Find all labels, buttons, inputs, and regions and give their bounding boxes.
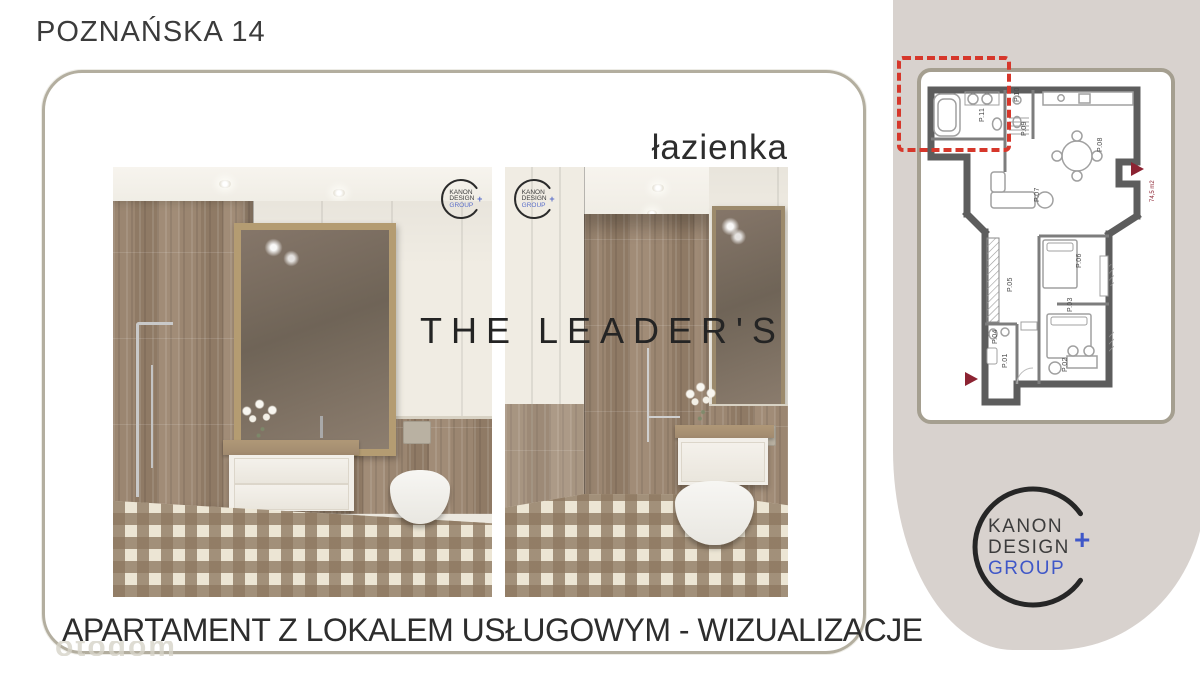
toilet <box>390 470 451 524</box>
highlight-dashed-box <box>897 56 1011 152</box>
flush-plate <box>403 421 432 445</box>
spotlight-icon <box>219 180 231 188</box>
kanon-stamp-line3: GROUP <box>449 203 474 210</box>
vanity-cabinet <box>229 455 354 511</box>
room-label-P.03: P.03 <box>1067 297 1074 312</box>
portal-watermark-clip: otodom <box>55 641 275 656</box>
kanon-stamp: KANON DESIGN GROUP + <box>511 176 557 222</box>
grab-bar-icon <box>647 416 681 418</box>
vanity-drawer <box>234 458 349 483</box>
kanon-stamp-text: KANON DESIGN GROUP <box>522 190 547 210</box>
room-label-P.04: P.04 <box>992 329 999 344</box>
room-label-P.07: P.07 <box>1034 187 1041 202</box>
section-label: łazienka <box>600 128 788 168</box>
bathroom-render-2: KANON DESIGN GROUP + <box>505 167 788 597</box>
kanon-logo-line1: KANON <box>988 516 1070 537</box>
flowers <box>238 399 287 442</box>
shower-rail-icon <box>136 322 173 497</box>
spotlight-icon <box>333 189 345 197</box>
room-label-P.01: P.01 <box>1002 353 1009 368</box>
room-label-P.02: P.02 <box>1062 357 1069 372</box>
kanon-logo-line2: DESIGN <box>988 537 1070 558</box>
kanon-stamp-plus: + <box>477 194 482 204</box>
page-title: POZNAŃSKA 14 <box>36 16 266 49</box>
bathroom-render-1: KANON DESIGN GROUP + <box>113 167 492 597</box>
presentation-slide: POZNAŃSKA 14 łazienka KANON DE <box>0 0 1200 675</box>
shower-hose <box>151 365 153 468</box>
plan-entry-marker-icon <box>965 372 978 386</box>
plan-radiator <box>1109 330 1114 352</box>
plan-balcony-strip <box>987 238 999 322</box>
vanity-drawer <box>681 442 764 482</box>
kanon-stamp: KANON DESIGN GROUP + <box>438 176 484 222</box>
vanity-drawer <box>234 484 349 509</box>
room-label-P.08: P.08 <box>1097 137 1104 152</box>
room-label-P.06: P.06 <box>1076 253 1083 268</box>
kanon-stamp-text: KANON DESIGN GROUP <box>449 190 474 210</box>
grab-bar-icon <box>647 348 649 443</box>
portal-watermark: otodom <box>55 641 275 656</box>
flowers <box>683 382 723 425</box>
plan-area-note: 74,5 m2 <box>1150 180 1156 202</box>
kanon-stamp-plus: + <box>549 194 554 204</box>
vanity-cabinet <box>678 438 769 485</box>
brand-watermark: THE LEADER'S <box>420 310 785 352</box>
kanon-logo-line3: GROUP <box>988 558 1070 579</box>
kanon-stamp-line3: GROUP <box>522 203 547 210</box>
vanity-countertop <box>675 425 774 438</box>
plan-radiator <box>1109 264 1114 286</box>
kanon-logo-plus: + <box>1074 524 1090 556</box>
room-label-P.09: P.09 <box>1021 121 1028 136</box>
vanity-countertop <box>223 440 359 455</box>
faucet-icon <box>320 416 323 438</box>
room-label-P.10: P.10 <box>1014 87 1021 102</box>
kanon-design-group-logo: KANON DESIGN GROUP + <box>958 472 1108 622</box>
room-label-P.05: P.05 <box>1007 277 1014 292</box>
kanon-logo-text: KANON DESIGN GROUP <box>988 516 1070 579</box>
